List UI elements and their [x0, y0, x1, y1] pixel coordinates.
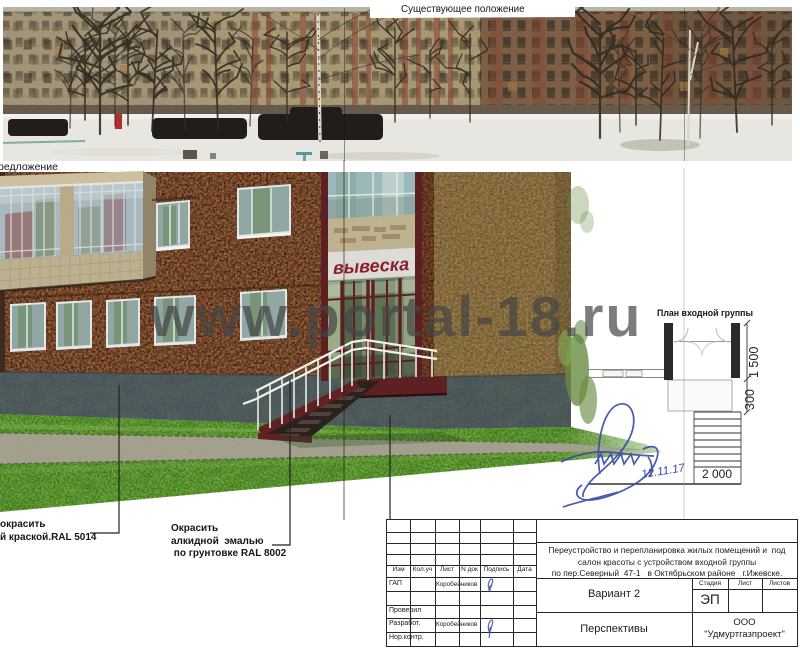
svg-text:2 000: 2 000	[702, 467, 732, 481]
svg-text:300: 300	[743, 389, 757, 410]
svg-text:1 500: 1 500	[747, 347, 761, 378]
